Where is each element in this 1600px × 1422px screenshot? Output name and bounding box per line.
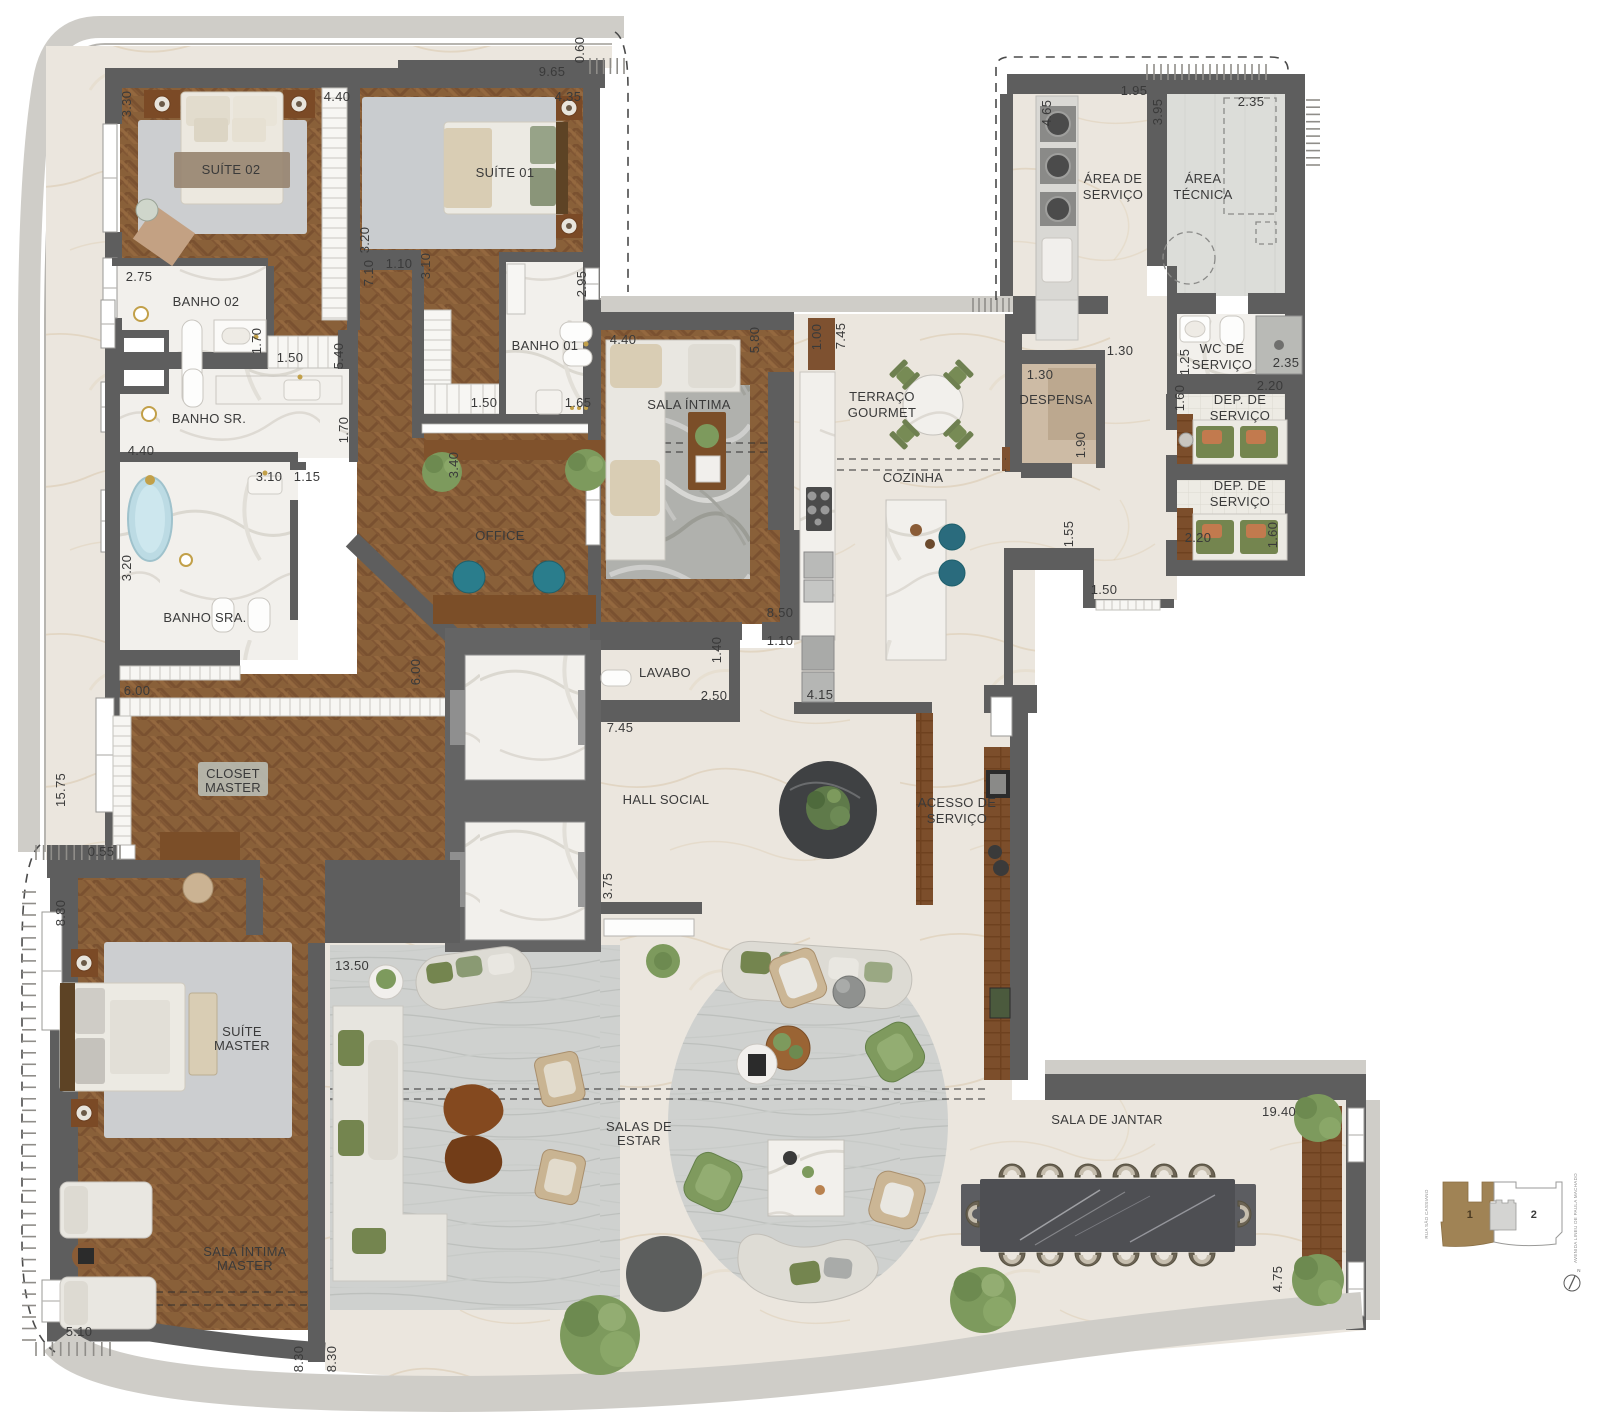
svg-text:1.70: 1.70 [336, 417, 351, 444]
svg-text:BANHO SRA.: BANHO SRA. [163, 610, 246, 625]
svg-text:DEP. DE: DEP. DE [1214, 392, 1266, 407]
svg-text:MASTER: MASTER [205, 780, 261, 795]
svg-text:GOURMET: GOURMET [848, 405, 917, 420]
svg-text:7.45: 7.45 [833, 323, 848, 350]
svg-text:RUA SÃO CASSIANO: RUA SÃO CASSIANO [1423, 1189, 1429, 1239]
svg-text:SUÍTE 01: SUÍTE 01 [476, 165, 535, 180]
svg-text:HALL SOCIAL: HALL SOCIAL [623, 792, 710, 807]
svg-text:3.20: 3.20 [357, 227, 372, 254]
svg-text:19.40: 19.40 [1262, 1104, 1296, 1119]
svg-text:4.40: 4.40 [610, 332, 637, 347]
svg-text:1.40: 1.40 [709, 637, 724, 664]
svg-text:SALA ÍNTIMA: SALA ÍNTIMA [203, 1244, 287, 1259]
svg-text:TÉCNICA: TÉCNICA [1173, 187, 1232, 202]
svg-text:1.15: 1.15 [294, 469, 321, 484]
svg-text:1.00: 1.00 [809, 324, 824, 351]
svg-text:SERVIÇO: SERVIÇO [927, 811, 987, 826]
svg-text:1.10: 1.10 [386, 256, 413, 271]
svg-text:1.25: 1.25 [1177, 349, 1192, 376]
svg-text:0.55: 0.55 [88, 844, 115, 859]
svg-text:SERVIÇO: SERVIÇO [1210, 494, 1270, 509]
svg-text:13.50: 13.50 [335, 958, 369, 973]
svg-text:15.75: 15.75 [53, 773, 68, 807]
svg-text:DEP. DE: DEP. DE [1214, 478, 1266, 493]
svg-text:SERVIÇO: SERVIÇO [1210, 408, 1270, 423]
svg-text:1.60: 1.60 [1265, 522, 1280, 549]
svg-text:ÁREA: ÁREA [1185, 171, 1222, 186]
svg-text:SALA ÍNTIMA: SALA ÍNTIMA [647, 397, 731, 412]
svg-text:DESPENSA: DESPENSA [1019, 392, 1092, 407]
svg-text:CLOSET: CLOSET [206, 766, 260, 781]
svg-text:1.95: 1.95 [1121, 83, 1148, 98]
svg-text:3.30: 3.30 [119, 91, 134, 118]
svg-text:1.50: 1.50 [277, 350, 304, 365]
svg-text:7.45: 7.45 [607, 720, 634, 735]
svg-text:SUÍTE 02: SUÍTE 02 [202, 162, 261, 177]
svg-text:7.10: 7.10 [361, 260, 376, 287]
svg-text:4.40: 4.40 [128, 443, 155, 458]
svg-text:5.10: 5.10 [66, 1324, 93, 1339]
svg-text:1.90: 1.90 [1073, 432, 1088, 459]
svg-text:SUÍTE: SUÍTE [222, 1024, 262, 1039]
svg-text:WC DE: WC DE [1200, 341, 1245, 356]
svg-text:4.35: 4.35 [555, 89, 582, 104]
svg-text:3.10: 3.10 [418, 253, 433, 280]
svg-text:COZINHA: COZINHA [883, 470, 944, 485]
svg-text:1.60: 1.60 [1172, 385, 1187, 412]
svg-text:4.40: 4.40 [324, 89, 351, 104]
svg-text:ÁREA DE: ÁREA DE [1084, 171, 1142, 186]
svg-text:2.35: 2.35 [1273, 355, 1300, 370]
svg-text:8.80: 8.80 [53, 900, 68, 927]
svg-text:8.30: 8.30 [291, 1346, 306, 1373]
svg-text:1.30: 1.30 [1107, 343, 1134, 358]
svg-text:BANHO SR.: BANHO SR. [172, 411, 246, 426]
svg-text:2.95: 2.95 [574, 271, 589, 298]
svg-text:4.15: 4.15 [807, 687, 834, 702]
svg-text:1.50: 1.50 [471, 395, 498, 410]
svg-text:SALA DE JANTAR: SALA DE JANTAR [1051, 1112, 1163, 1127]
svg-text:6.00: 6.00 [124, 683, 151, 698]
svg-text:BANHO 02: BANHO 02 [173, 294, 240, 309]
svg-text:3.40: 3.40 [446, 452, 461, 479]
svg-text:5.80: 5.80 [747, 327, 762, 354]
svg-text:2.20: 2.20 [1185, 530, 1212, 545]
svg-text:3.75: 3.75 [600, 873, 615, 900]
svg-text:2.20: 2.20 [1257, 378, 1284, 393]
svg-text:BANHO 01: BANHO 01 [512, 338, 579, 353]
svg-text:AVENIDA LINEU DE PAULA MACHADO: AVENIDA LINEU DE PAULA MACHADO [1573, 1173, 1578, 1263]
svg-text:8.30: 8.30 [324, 1346, 339, 1373]
svg-text:1.70: 1.70 [249, 328, 264, 355]
svg-text:3.95: 3.95 [1150, 99, 1165, 126]
svg-text:SALAS DE: SALAS DE [606, 1119, 672, 1134]
svg-text:4.65: 4.65 [1039, 100, 1054, 127]
svg-text:MASTER: MASTER [217, 1258, 273, 1273]
svg-text:1.65: 1.65 [565, 395, 592, 410]
svg-text:9.65: 9.65 [539, 64, 566, 79]
svg-text:1: 1 [1467, 1209, 1473, 1221]
svg-text:LAVABO: LAVABO [639, 665, 691, 680]
svg-text:ESTAR: ESTAR [617, 1133, 661, 1148]
svg-text:2.35: 2.35 [1238, 94, 1265, 109]
svg-text:N: N [1577, 1268, 1581, 1273]
svg-text:3.10: 3.10 [256, 469, 283, 484]
svg-text:2.75: 2.75 [126, 269, 153, 284]
svg-text:1.30: 1.30 [1027, 367, 1054, 382]
svg-text:1.10: 1.10 [767, 633, 794, 648]
svg-text:OFFICE: OFFICE [475, 528, 524, 543]
svg-text:6.00: 6.00 [408, 659, 423, 686]
svg-text:TERRAÇO: TERRAÇO [849, 389, 915, 404]
svg-text:8.50: 8.50 [767, 605, 794, 620]
svg-text:MASTER: MASTER [214, 1038, 270, 1053]
svg-text:1.55: 1.55 [1061, 521, 1076, 548]
svg-text:3.20: 3.20 [119, 555, 134, 582]
svg-text:ACESSO DE: ACESSO DE [918, 795, 997, 810]
svg-text:2: 2 [1531, 1209, 1537, 1221]
svg-text:4.75: 4.75 [1270, 1266, 1285, 1293]
svg-text:5.40: 5.40 [331, 343, 346, 370]
svg-text:1.50: 1.50 [1091, 582, 1118, 597]
svg-text:SERVIÇO: SERVIÇO [1192, 357, 1252, 372]
svg-text:SERVIÇO: SERVIÇO [1083, 187, 1143, 202]
svg-text:0.60: 0.60 [572, 37, 587, 64]
svg-text:2.50: 2.50 [701, 688, 728, 703]
